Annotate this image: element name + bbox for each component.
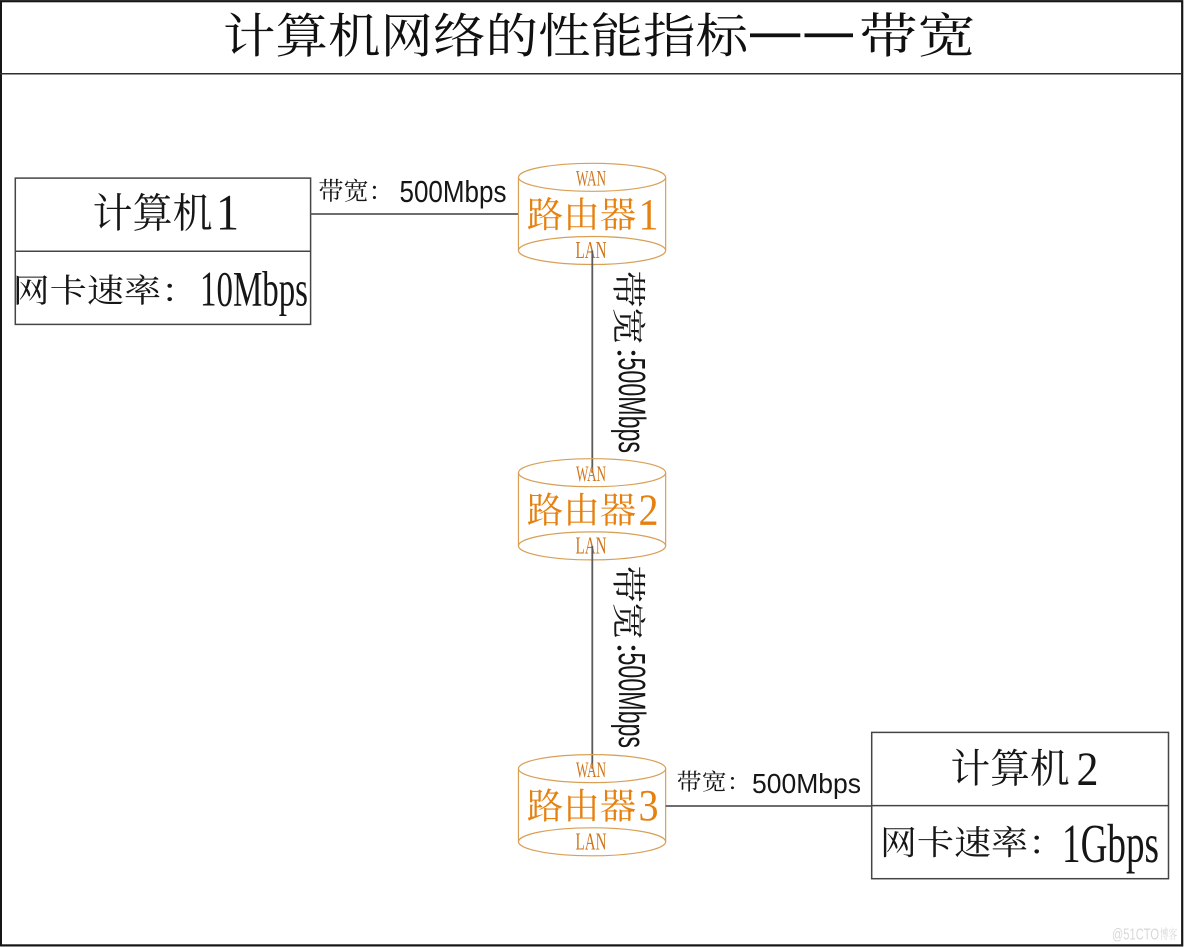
svg-text:WAN: WAN [576,166,606,191]
svg-text:500Mbps: 500Mbps [610,358,652,454]
svg-text:1: 1 [639,190,659,239]
svg-text:LAN: LAN [576,238,607,264]
svg-text:@51CTO: @51CTO [1112,927,1159,944]
svg-text:LAN: LAN [576,533,607,559]
svg-text:500Mbps: 500Mbps [400,174,507,209]
svg-text:1Gbps: 1Gbps [1062,813,1159,874]
svg-text:WAN: WAN [576,461,606,486]
svg-text:1: 1 [216,186,239,242]
svg-text:2: 2 [1077,743,1099,796]
svg-text:500Mbps: 500Mbps [752,768,861,799]
svg-text:2: 2 [639,485,659,534]
svg-text:LAN: LAN [576,829,607,855]
svg-text:10Mbps: 10Mbps [200,261,308,317]
svg-text:3: 3 [639,781,659,830]
svg-text:500Mbps: 500Mbps [610,653,652,749]
svg-text:WAN: WAN [576,757,606,782]
